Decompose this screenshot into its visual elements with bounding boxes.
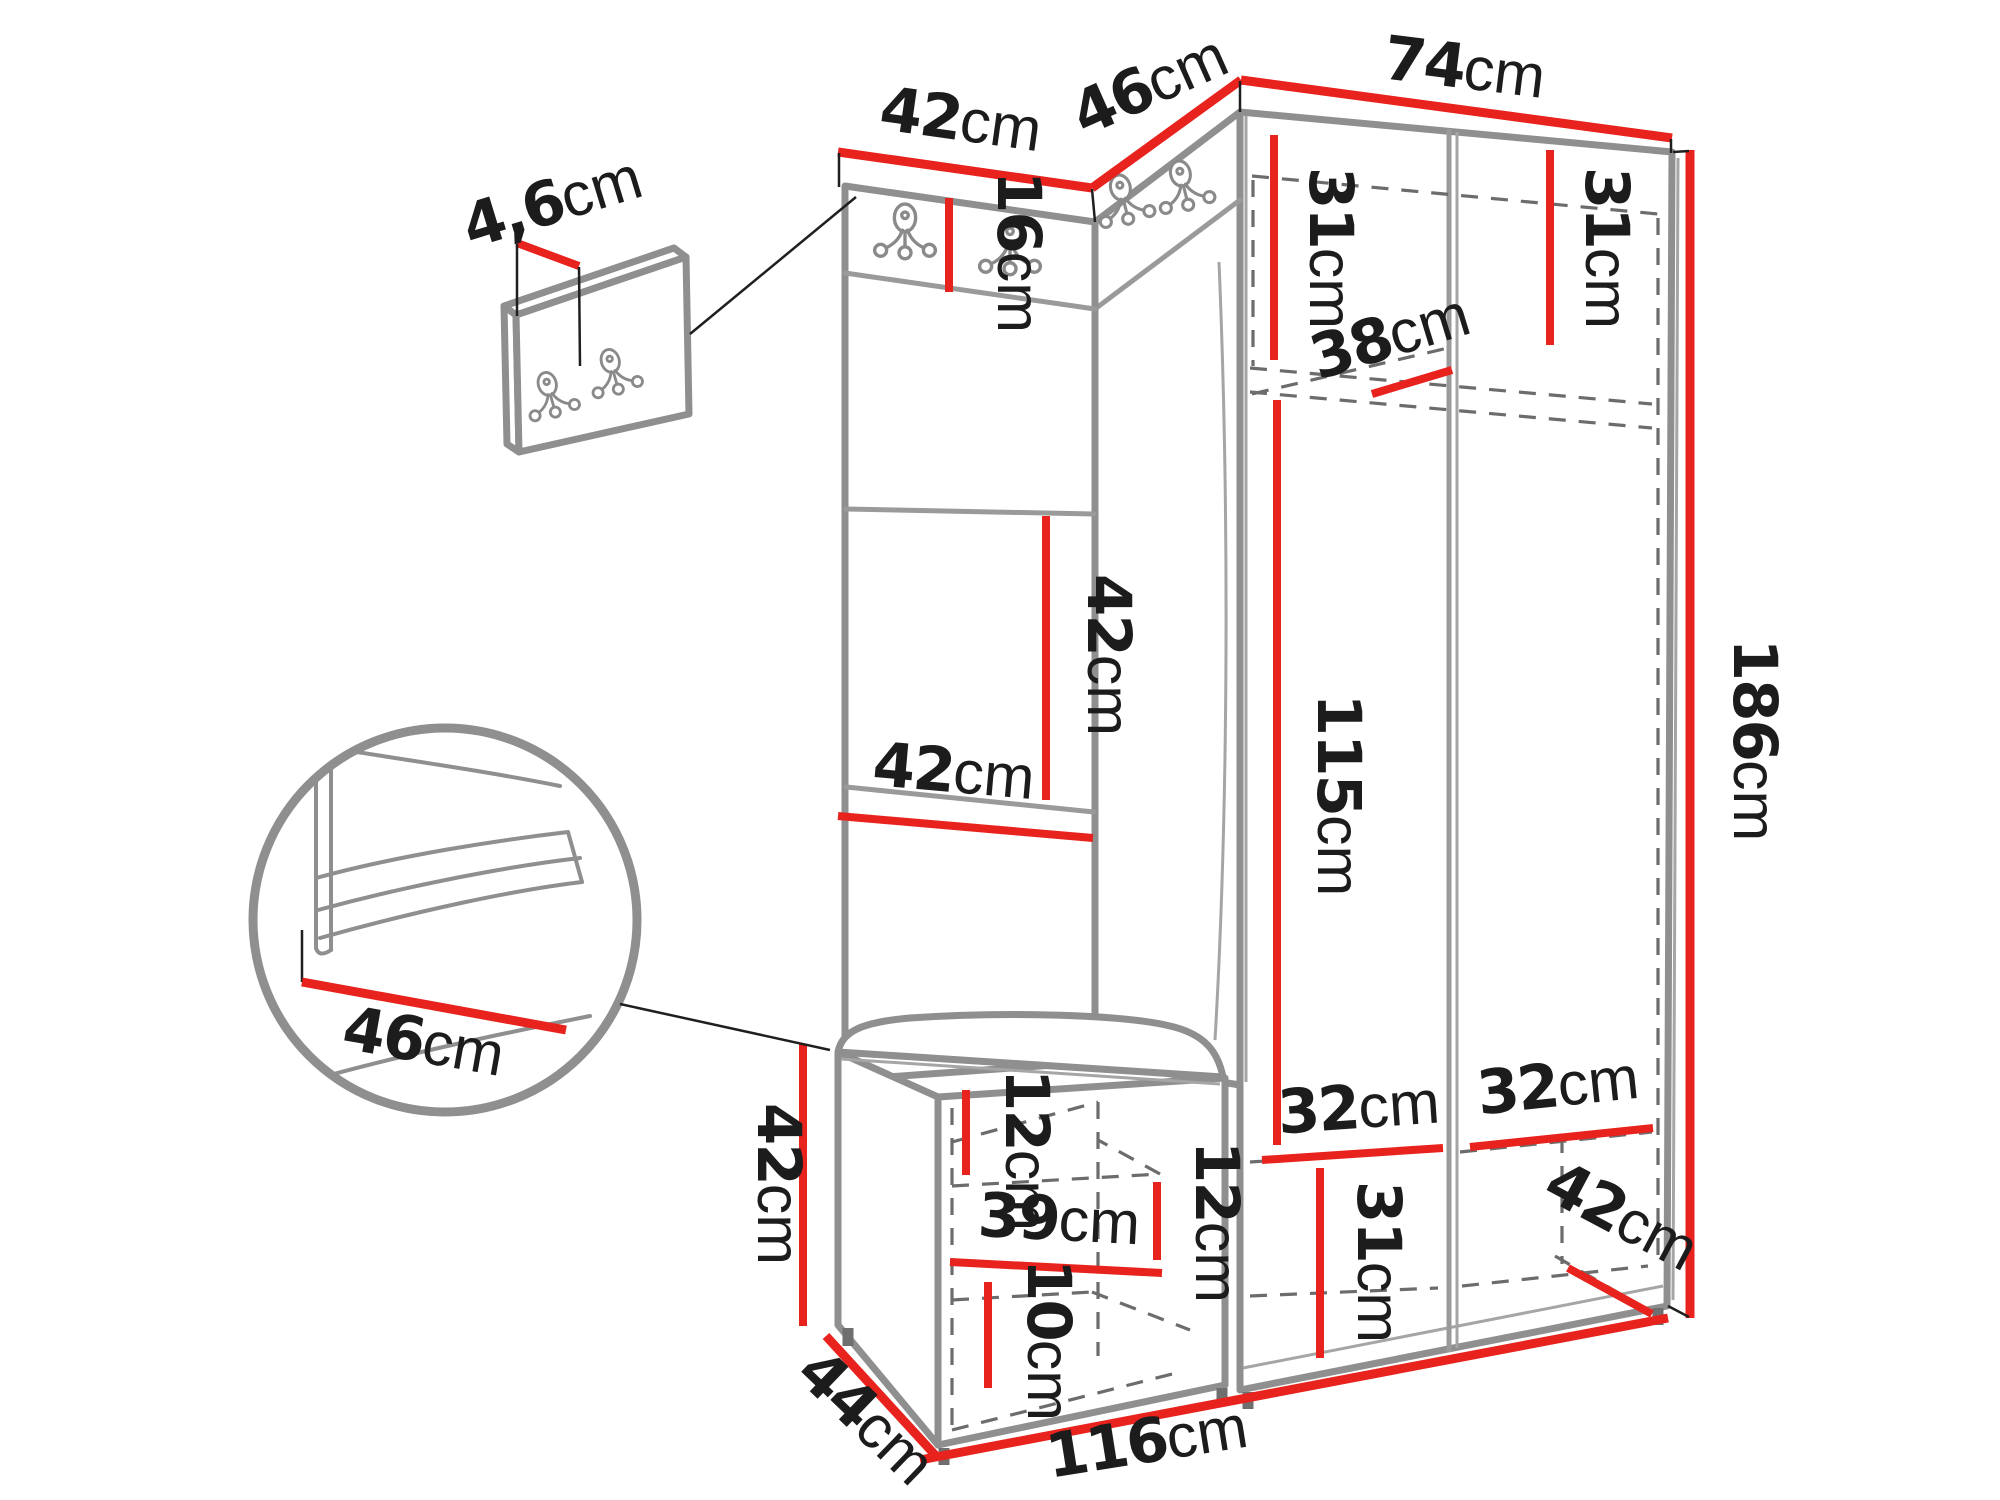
hook-panel-leader-line (690, 197, 856, 334)
tick-top-mid (1092, 189, 1095, 222)
hook-panel-tick-right (579, 267, 580, 366)
dim-label-bench-shelf-spacing: 12cm (1181, 1141, 1252, 1303)
dim-label-panel-width: 42cm (870, 729, 1038, 814)
left-panel-face (845, 186, 1095, 1080)
dim-label-panel-pad-height: 42cm (1073, 574, 1144, 736)
seat-detail-leader-line (620, 1004, 830, 1050)
dim-label-bench-lower-height: 10cm (1013, 1259, 1084, 1421)
left-upholstered-panel (845, 186, 1095, 1080)
dim-label-hook-panel-thickness: 4,6cm (454, 142, 650, 264)
dim-label-shelf-right-height: 31cm (1571, 167, 1642, 329)
dim-label-bench-height: 42cm (743, 1103, 814, 1265)
seat-detail-circle: 46cm (253, 728, 830, 1112)
dim-label-shelf-left-height: 31cm (1295, 167, 1366, 329)
furniture-dimension-diagram: 42cm 46cm 74cm 186cm 16cm 31cm 31cm 38cm… (0, 0, 2000, 1500)
dim-label-top-panel-width: 42cm (876, 73, 1047, 166)
diagram-canvas: 42cm 46cm 74cm 186cm 16cm 31cm 31cm 38cm… (0, 0, 2000, 1500)
dim-label-compartment-left-width: 32cm (1275, 1066, 1442, 1148)
dim-label-hanging-space-height: 115cm (1303, 694, 1374, 897)
tick-height-top (1673, 151, 1689, 152)
hook-panel-detail: 4,6cm (454, 142, 856, 452)
dim-label-total-height: 186cm (1719, 639, 1790, 842)
dim-label-compartment-height: 31cm (1343, 1181, 1414, 1343)
dim-label-hook-strip-height: 16cm (983, 171, 1054, 333)
dim-label-bench-inner-width: 39cm (976, 1180, 1142, 1259)
